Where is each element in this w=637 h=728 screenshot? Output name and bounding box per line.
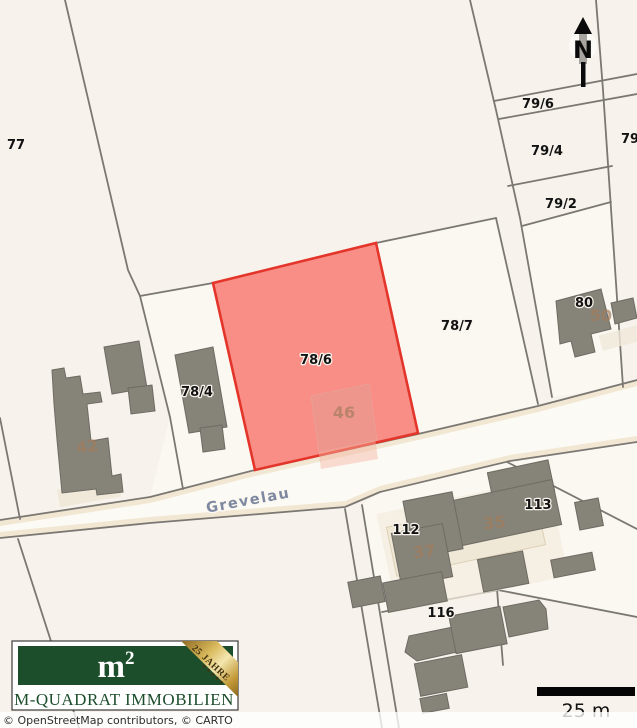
parcel-label-116: 116 xyxy=(427,606,454,621)
parcel-label-79: 79 xyxy=(621,132,637,147)
parcel-label-79-6: 79/6 xyxy=(522,97,554,112)
house-number-46: 46 xyxy=(333,403,355,422)
house-number-37: 37 xyxy=(412,541,436,562)
map-viewport: 77 78/4 78/6 78/7 79/6 79/4 79/2 79 80 1… xyxy=(0,0,637,728)
house-number-42: 42 xyxy=(75,436,100,458)
building-78-4-annex xyxy=(200,425,225,452)
attribution-text[interactable]: © OpenStreetMap contributors, © CARTO xyxy=(3,714,233,727)
building-south-square xyxy=(575,498,604,530)
parcel-label-79-4: 79/4 xyxy=(531,144,563,159)
building-strip xyxy=(348,576,385,608)
parcel-label-78-7: 78/7 xyxy=(441,319,473,334)
house-number-50: 50 xyxy=(590,306,612,325)
cadastral-map: 77 78/4 78/6 78/7 79/6 79/4 79/2 79 80 1… xyxy=(0,0,637,728)
parcel-label-79-2: 79/2 xyxy=(545,197,577,212)
north-arrow-tail xyxy=(581,62,586,87)
parcel-label-77: 77 xyxy=(7,138,25,153)
parcel-label-78-6: 78/6 xyxy=(300,353,332,368)
parcel-label-78-4: 78/4 xyxy=(181,385,213,400)
north-label: N xyxy=(573,36,593,64)
building-upper-left-annex xyxy=(128,385,155,414)
scale-bar-rule xyxy=(537,687,635,696)
parcel-label-113: 113 xyxy=(524,498,551,513)
house-number-35: 35 xyxy=(482,512,506,533)
parcel-label-112: 112 xyxy=(392,523,419,538)
company-logo: m2 M-QUADRAT IMMOBILIEN 25 JAHRE ★★★★★ xyxy=(12,641,238,710)
logo-company-name: M-QUADRAT IMMOBILIEN xyxy=(14,690,234,709)
